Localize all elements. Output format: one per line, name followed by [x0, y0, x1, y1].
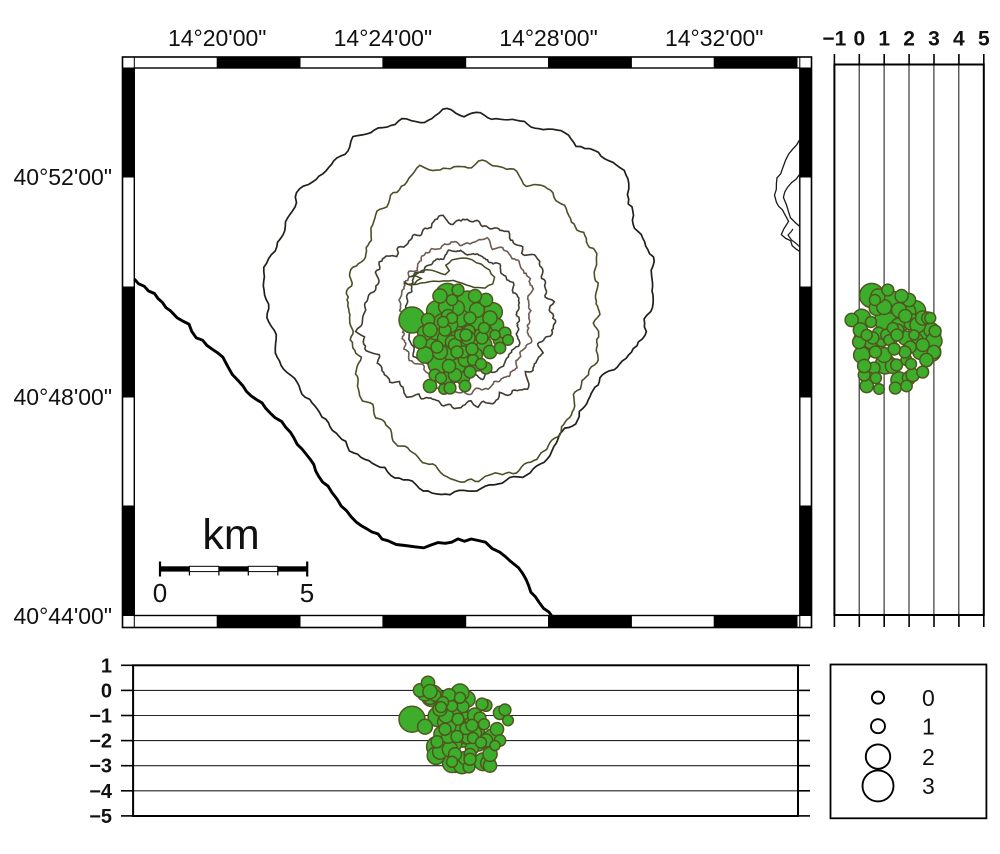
svg-text:−5: −5 [89, 806, 112, 828]
svg-text:−1: −1 [89, 706, 112, 728]
svg-text:14°24'00": 14°24'00" [334, 25, 433, 51]
svg-text:4: 4 [953, 28, 965, 51]
svg-text:40°48'00": 40°48'00" [13, 384, 112, 410]
svg-text:−4: −4 [89, 781, 113, 803]
svg-text:3: 3 [928, 28, 940, 51]
svg-text:5: 5 [300, 578, 314, 608]
svg-text:1: 1 [101, 655, 112, 677]
svg-text:1: 1 [922, 713, 935, 739]
svg-text:14°20'00": 14°20'00" [168, 25, 267, 51]
svg-text:km: km [202, 511, 259, 559]
svg-text:14°32'00": 14°32'00" [665, 25, 764, 51]
svg-text:0: 0 [153, 578, 167, 608]
svg-text:5: 5 [978, 28, 990, 51]
svg-text:2: 2 [922, 744, 935, 770]
svg-text:0: 0 [853, 28, 865, 51]
svg-text:−3: −3 [89, 756, 112, 778]
svg-text:0: 0 [101, 680, 112, 702]
svg-text:−1: −1 [822, 28, 846, 51]
svg-text:0: 0 [922, 685, 935, 711]
svg-text:2: 2 [903, 28, 915, 51]
svg-text:3: 3 [922, 773, 935, 799]
svg-text:1: 1 [878, 28, 890, 51]
svg-text:40°52'00": 40°52'00" [13, 164, 112, 190]
svg-text:40°44'00": 40°44'00" [13, 603, 112, 629]
svg-text:14°28'00": 14°28'00" [499, 25, 598, 51]
svg-text:−2: −2 [89, 731, 112, 753]
